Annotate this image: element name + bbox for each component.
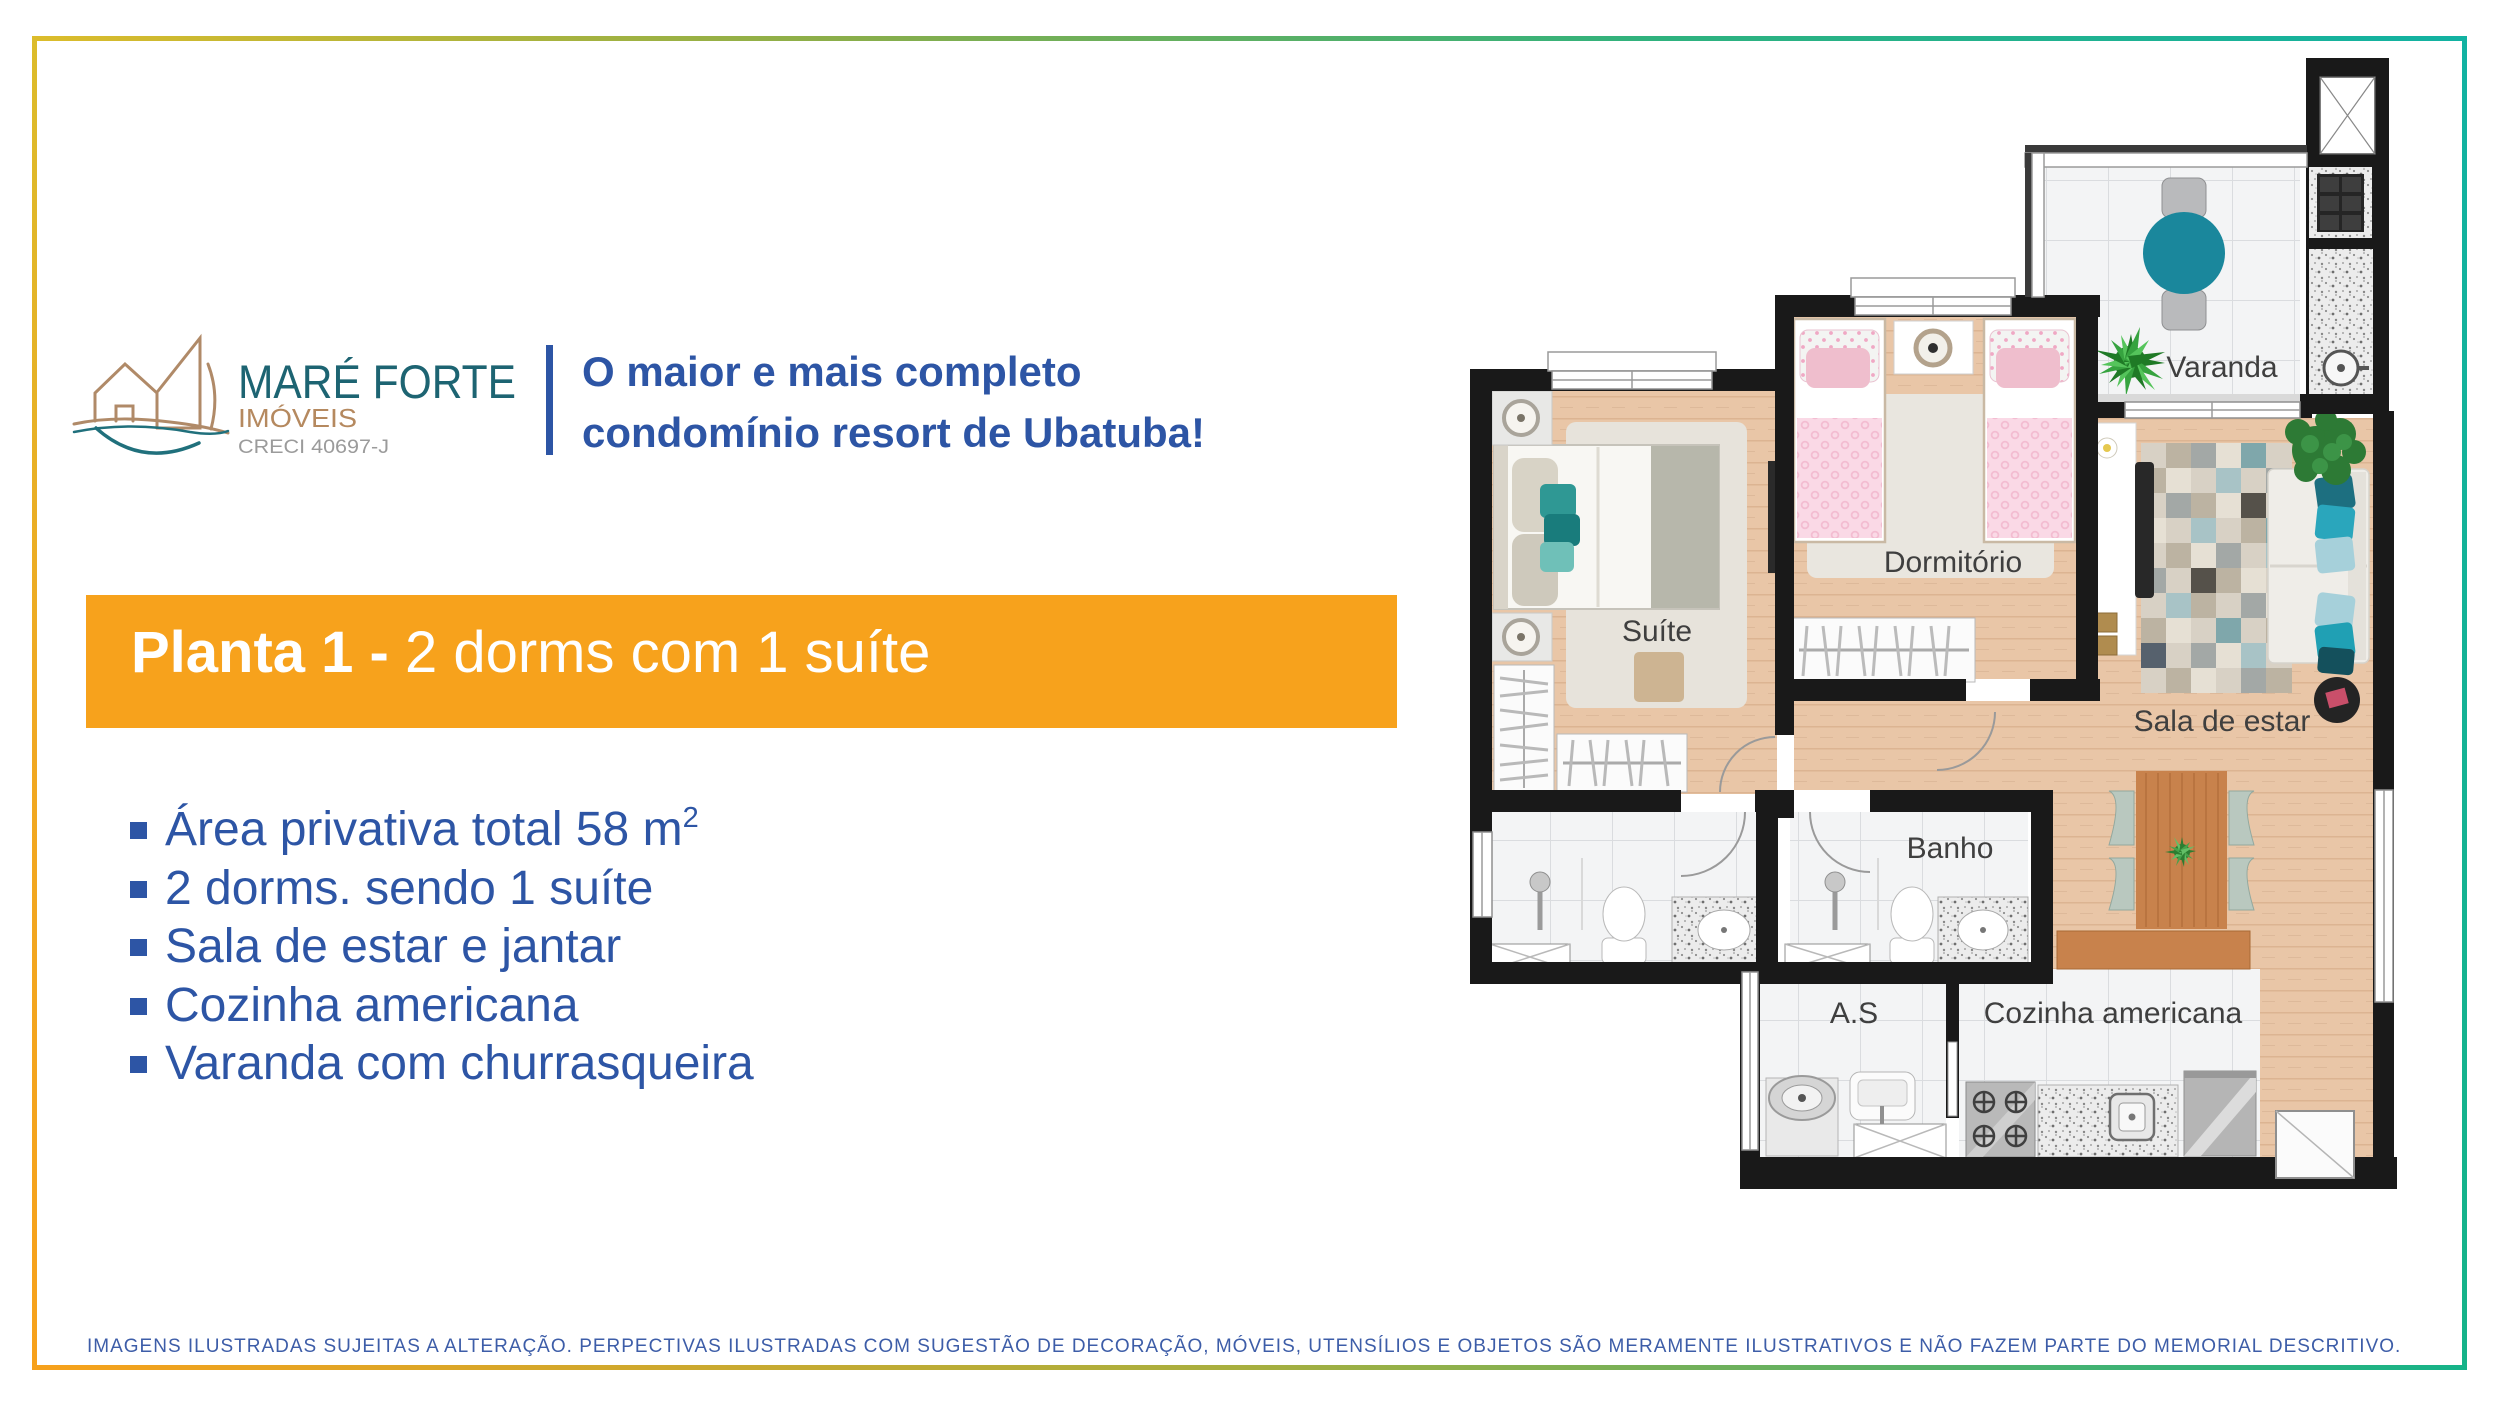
- svg-text:Banho: Banho: [1907, 832, 1994, 865]
- svg-text:IMÓVEIS: IMÓVEIS: [238, 403, 357, 433]
- svg-text:CRECI 40697-J: CRECI 40697-J: [238, 437, 389, 458]
- svg-text:Sala de estar: Sala de estar: [2134, 705, 2311, 738]
- svg-text:Suíte: Suíte: [1622, 615, 1692, 648]
- svg-text:Cozinha americana: Cozinha americana: [1984, 997, 2243, 1030]
- svg-text:A.S: A.S: [1830, 997, 1878, 1030]
- svg-text:Varanda: Varanda: [2166, 351, 2278, 384]
- svg-text:Dormitório: Dormitório: [1884, 546, 2022, 579]
- svg-text:MARÉ FORTE: MARÉ FORTE: [238, 355, 516, 408]
